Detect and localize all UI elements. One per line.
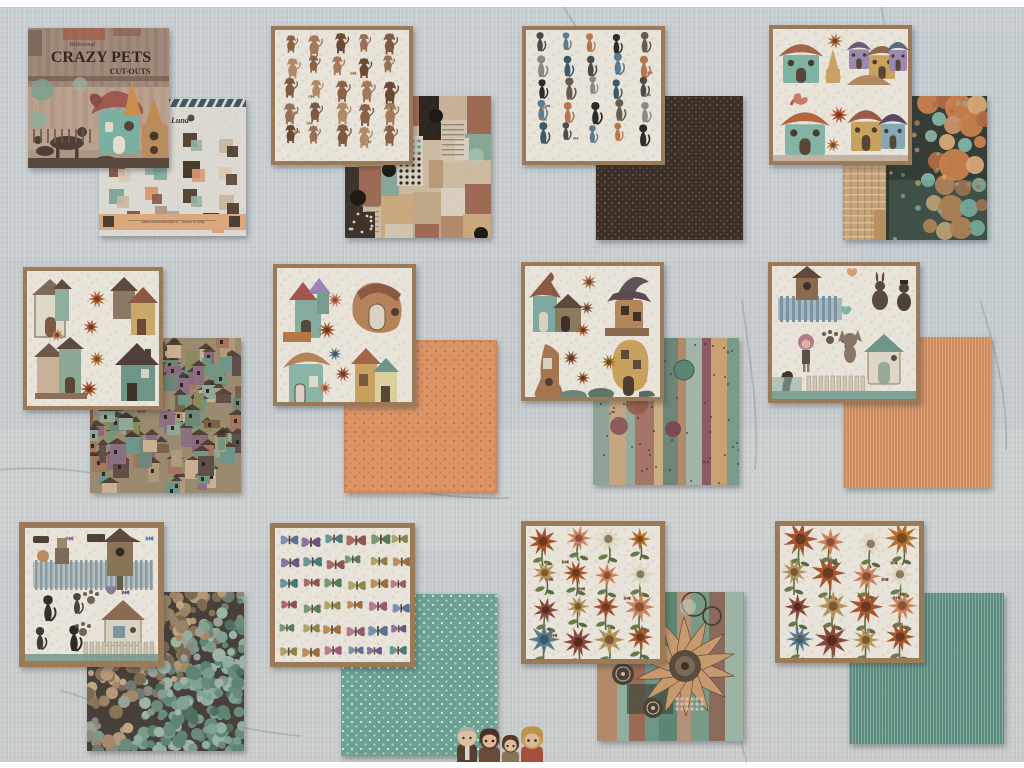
svg-text:CUT-OUTS: CUT-OUTS [110, 67, 151, 76]
svg-text:CRAZY PETS: CRAZY PETS [51, 49, 151, 66]
svg-text:www.lunacollection.it - made: www.lunacollection.it - made in italy [142, 219, 205, 224]
svg-text:Willowood: Willowood [69, 42, 96, 48]
svg-text:Luna: Luna [170, 116, 189, 125]
